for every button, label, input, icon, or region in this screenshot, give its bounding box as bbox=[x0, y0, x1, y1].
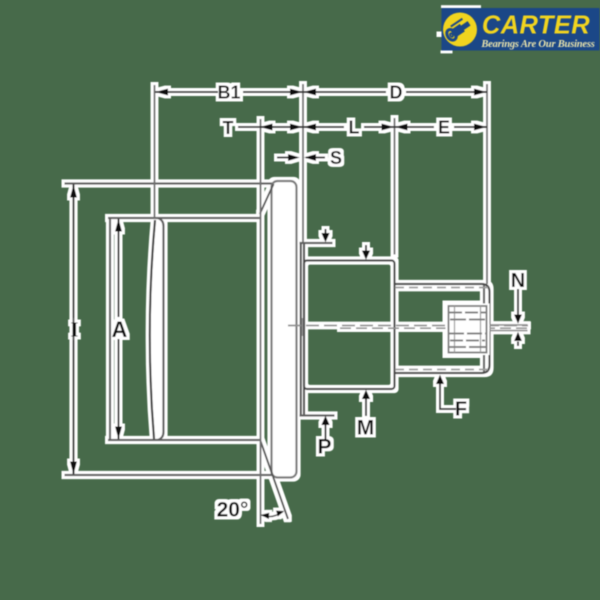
svg-text:F: F bbox=[455, 399, 467, 421]
svg-text:Bearings Are Our Business: Bearings Are Our Business bbox=[480, 39, 594, 50]
svg-text:N: N bbox=[511, 270, 525, 292]
svg-text:A: A bbox=[112, 317, 128, 342]
svg-text:CARTER: CARTER bbox=[482, 12, 590, 40]
svg-text:S: S bbox=[330, 148, 342, 168]
svg-text:D: D bbox=[390, 83, 403, 103]
svg-text:I: I bbox=[70, 318, 78, 342]
svg-text:M: M bbox=[357, 417, 375, 440]
svg-text:P: P bbox=[317, 436, 331, 459]
svg-text:L: L bbox=[349, 118, 360, 138]
svg-text:T: T bbox=[223, 118, 234, 138]
svg-text:E: E bbox=[438, 118, 450, 138]
svg-text:B1: B1 bbox=[217, 83, 240, 103]
svg-text:20°: 20° bbox=[217, 499, 249, 522]
